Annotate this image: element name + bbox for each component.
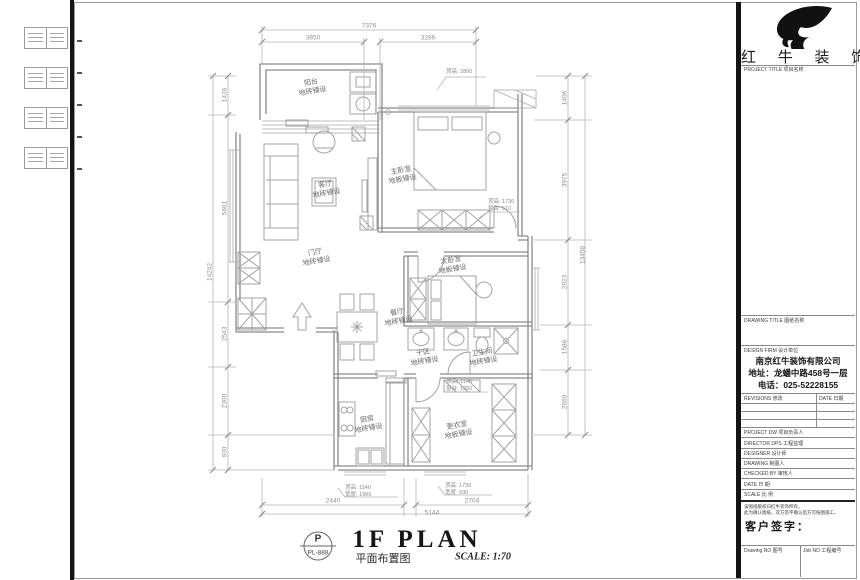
drawing-by-label: DRAWING 制图人 bbox=[744, 460, 784, 467]
dim-right-total: 13458 bbox=[580, 246, 587, 264]
drawing-sheet: 阳台地砖铺设 客厅地砖铺设 门厅地砖铺设 主卧室地板铺设 次卧室地板铺设 餐厅地… bbox=[0, 0, 860, 580]
titleblock-divider bbox=[741, 437, 855, 438]
dim-left-seg: 2543 bbox=[222, 327, 229, 341]
dining-set bbox=[337, 294, 377, 360]
shower bbox=[494, 328, 518, 354]
kitchen-sink bbox=[356, 448, 384, 466]
titleblock-divider bbox=[741, 427, 855, 428]
shoe-cabinet bbox=[238, 298, 266, 330]
revisions-label: REVISIONS 修改 bbox=[744, 395, 783, 402]
date-label: DATE 日 期 bbox=[744, 481, 770, 488]
height-note: 顶高: 1140宽度: 1909 bbox=[345, 485, 371, 499]
door-swings bbox=[376, 206, 516, 402]
dim-bottom-left: 2440 bbox=[326, 498, 340, 505]
height-note: 顶高: 1730窗台: 510 bbox=[488, 199, 514, 213]
second-nightstand bbox=[410, 278, 426, 320]
dim-top-left: 3850 bbox=[306, 35, 320, 42]
scale-label: SCALE 比 例 bbox=[744, 491, 773, 498]
second-bed bbox=[428, 276, 492, 324]
dim-right-seg: 2923 bbox=[562, 275, 569, 289]
project-title-label: PROJECT TITLE 项目名称 bbox=[744, 66, 804, 73]
dim-left-seg: 5661 bbox=[222, 201, 229, 215]
floor-plan-drawing bbox=[0, 0, 860, 580]
height-note: 顶高: 2800 bbox=[446, 69, 472, 76]
dim-top-total: 7376 bbox=[362, 23, 376, 30]
dim-left-total: 14242 bbox=[207, 263, 214, 281]
revision-date-label: DATE 日期 bbox=[819, 395, 843, 402]
dim-right-seg: 1586 bbox=[562, 340, 569, 354]
dim-right-seg: 3975 bbox=[562, 173, 569, 187]
dimension-ticks bbox=[210, 27, 588, 517]
titleblock-divider bbox=[741, 345, 855, 346]
master-bed bbox=[414, 112, 500, 190]
dim-left-seg: 930 bbox=[222, 447, 229, 458]
dim-left-seg: 1426 bbox=[222, 88, 229, 102]
company-address: 地址：龙蟠中路458号一层 bbox=[741, 367, 855, 379]
kitchen-counter bbox=[386, 382, 404, 464]
ac-unit bbox=[352, 127, 373, 230]
disclaimer-line: 此为确认图纸，双方签字确认后方可按图施工。 bbox=[744, 510, 839, 516]
washing-machine bbox=[350, 72, 376, 114]
design-firm-label: DESIGN FIRM 设计单位 bbox=[744, 347, 798, 354]
dim-right-seg: 1406 bbox=[562, 91, 569, 105]
entry-arrow bbox=[293, 303, 311, 330]
project-dw-label: PROJECT DW 项目负责人 bbox=[744, 429, 803, 436]
titleblock-divider bbox=[741, 458, 855, 459]
window-lines bbox=[228, 90, 540, 475]
checked-by-label: CHECKED BY 审核人 bbox=[744, 470, 793, 477]
sheet-badge-code: PL-888 bbox=[308, 550, 329, 557]
titleblock-divider bbox=[741, 315, 855, 316]
dim-left-seg: 2300 bbox=[222, 394, 229, 408]
dim-right-seg: 2660 bbox=[562, 395, 569, 409]
drawing-no-label: Drawing NO 图号 bbox=[744, 547, 783, 554]
company-phone: 电话：025-52228155 bbox=[741, 379, 855, 391]
revision-row-line bbox=[741, 419, 855, 420]
sofa bbox=[264, 144, 298, 240]
titleblock-divider bbox=[741, 478, 855, 479]
dim-bottom-right: 2704 bbox=[465, 498, 479, 505]
company-logo-text: 红 牛 装 饰 bbox=[741, 46, 855, 67]
drawing-title-label: DRAWING TITLE 图纸名称 bbox=[744, 317, 804, 324]
titleblock-divider bbox=[741, 468, 855, 469]
dim-top-right: 3286 bbox=[421, 35, 435, 42]
dim-bottom-total: 5144 bbox=[425, 510, 439, 517]
designer-label: DESIGNER 设计师 bbox=[744, 450, 787, 457]
job-no-label: Job NO 工程编号 bbox=[803, 547, 841, 554]
company-name: 南京红牛装饰有限公司 bbox=[741, 355, 855, 367]
plan-subtitle: 平面布置图 bbox=[356, 550, 411, 566]
height-note: 顶高: 1140窗台: 1650 bbox=[446, 379, 472, 393]
titleblock-divider bbox=[741, 448, 855, 449]
sheet-badge-letter: P bbox=[315, 534, 322, 545]
tv-cabinet bbox=[362, 158, 377, 230]
customer-signature-label: 客户签字： bbox=[745, 518, 810, 534]
titleblock-divider bbox=[741, 545, 855, 546]
living-side-cabinet bbox=[238, 252, 260, 284]
plan-scale: SCALE: 1:70 bbox=[455, 552, 511, 563]
revision-table-divider bbox=[816, 393, 817, 427]
revision-row-line bbox=[741, 411, 855, 412]
director-label: DIRECTOR DPS 工程监理 bbox=[744, 440, 803, 447]
height-note: 顶高: 1730宽度: 930 bbox=[445, 483, 471, 497]
vanity-sinks bbox=[408, 328, 468, 350]
titleblock-thick-divider bbox=[741, 500, 855, 502]
armchair bbox=[313, 131, 335, 153]
revision-row-line bbox=[741, 403, 855, 404]
footer-cell-divider bbox=[800, 545, 801, 577]
titleblock-divider bbox=[741, 489, 855, 490]
titleblock-divider bbox=[741, 393, 855, 394]
master-wardrobe bbox=[418, 210, 490, 230]
company-logo-icon bbox=[754, 5, 844, 49]
